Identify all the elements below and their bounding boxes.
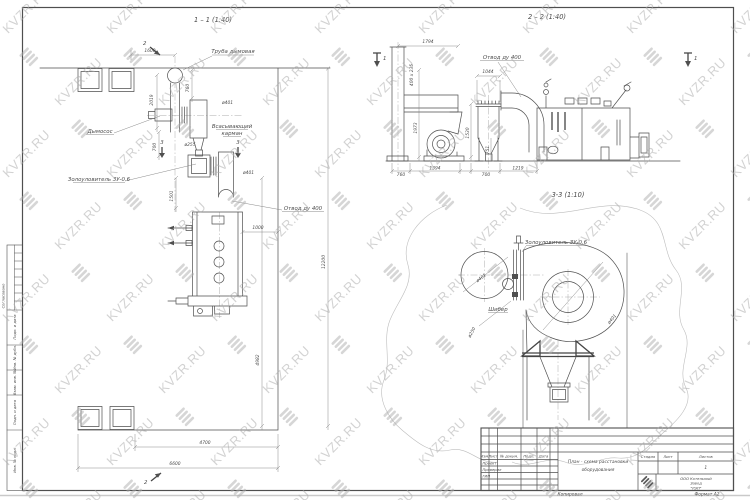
tb-footer-copied: Копировал	[557, 492, 582, 498]
sec3-label-damper: Шибер	[488, 307, 508, 313]
plan-centerlines	[147, 56, 242, 318]
plan-label-ash: Золоуловитель ЗУ-0.6	[68, 177, 131, 183]
sec2-dim-751: 751	[485, 146, 491, 155]
plan-label-pocket-1: Всасывающий	[212, 124, 253, 130]
plan-marker-3-left-head	[159, 153, 165, 158]
sec2-marker-right: 1	[694, 56, 697, 62]
plan-dim-1000: 1000	[252, 225, 263, 231]
plan-boiler	[168, 212, 247, 316]
sec2-dimension-lines	[390, 44, 539, 174]
plan-label-pocket-2: карман	[222, 131, 243, 137]
plan-dim-12200: 12200	[321, 255, 327, 269]
tb-row-gip: ГИП	[483, 475, 491, 479]
plan-dim-760: 760	[185, 84, 191, 93]
sec2-dim-1044: 1044	[482, 69, 493, 75]
sec2-gauge-circle	[624, 85, 630, 91]
plan-ash-catcher	[188, 152, 234, 197]
tb-doc-title-1: План - схема расстановки	[568, 459, 629, 465]
sec2-dim-760: 760	[397, 172, 406, 178]
tb-company-1: ООО Котельный	[680, 477, 712, 481]
tb-footer-format: Формат А2	[694, 492, 719, 498]
drawing-canvas: 1 – 1 (1:40) 1600 2019 760 700 1501 ø255…	[0, 0, 750, 500]
sec3-damper	[514, 236, 524, 300]
plan-label-fan: Дымосос	[86, 129, 112, 135]
view-2-2-title: 2 – 2 (1:40)	[528, 13, 566, 21]
sec3-dim-d401-cyclone: ø401	[606, 313, 618, 326]
tb-row-proekt: Проект	[483, 462, 498, 466]
sec3-damper-bolts	[512, 274, 518, 297]
plan-label-outlet: Отвод ду 400	[284, 206, 323, 212]
view-2-2: 2 – 2 (1:40) 1 1 1794 400 x 2	[373, 13, 697, 178]
company-logo-icon	[641, 476, 654, 489]
stamp-approved: Согласовано	[2, 283, 6, 309]
tb-company-2: Завод	[690, 482, 702, 486]
sec2-dim-1219: 1219	[512, 166, 523, 172]
plan-marker-3-left: 3	[160, 140, 164, 146]
stamp-repl-inv: Взам. инв. №	[13, 370, 17, 395]
tb-col-podp: Подп.	[523, 455, 534, 459]
plan-dim-d401-duct: ø401	[242, 170, 254, 176]
sec2-dim-400x235: 400 x 235	[409, 64, 415, 86]
tb-company-3: "РЭП"	[691, 486, 702, 490]
view-1-1-title: 1 – 1 (1:40)	[194, 16, 232, 24]
sec3-damper-mech	[503, 279, 514, 290]
plan-dim-6600: 6600	[169, 461, 180, 467]
tb-sheets-value: 1	[704, 465, 707, 471]
sec2-boiler-tubes	[552, 112, 565, 132]
plan-boiler-port-3	[214, 273, 224, 283]
plan-dimension-lines	[76, 50, 330, 472]
tb-col-data: Дата	[538, 455, 549, 459]
sec2-label-outlet: Отвод ду 400	[483, 55, 522, 61]
plan-boiler-port-1	[214, 241, 224, 251]
sec2-fan-hub	[437, 140, 445, 148]
tb-row-proveril: Проверил	[483, 468, 503, 472]
view-3-3-title: 3-3 (1:10)	[552, 191, 585, 199]
stamp-inv-dup: Инв. № дубл.	[13, 345, 17, 370]
plan-dim-4982: 4982	[255, 354, 261, 365]
sec3-break-line-left	[382, 205, 498, 462]
sec2-fan-casing	[427, 130, 455, 158]
sec2-fan-frame	[424, 112, 464, 161]
title-block: Изм. Лист № докум. Подп. Дата Проект Про…	[481, 428, 734, 498]
tb-col-sheets: Листов	[698, 455, 713, 459]
plan-dim-1501: 1501	[169, 190, 175, 201]
sec2-valve-circle-2	[544, 83, 548, 87]
sec2-fan-inner	[433, 136, 450, 153]
stamp-sign-date-1: Подп. и дата	[13, 314, 17, 340]
tb-col-sheet: Лист	[662, 455, 673, 459]
sec2-boiler	[537, 79, 649, 160]
plan-marker-2-bottom: 2	[144, 480, 148, 486]
drawing-sheet: 1 – 1 (1:40) 1600 2019 760 700 1501 ø255…	[0, 0, 750, 500]
sec2-marker-right-head	[685, 61, 691, 67]
tb-col-ndoc: № докум.	[499, 455, 518, 459]
sec2-manhole	[548, 146, 558, 154]
view-1-1: 1 – 1 (1:40) 1600 2019 760 700 1501 ø255…	[40, 16, 330, 486]
view-3-3: 3-3 (1:10) ø401 ø401 ø250 Золоуловитель …	[382, 191, 688, 464]
plan-dim-d255: ø255	[183, 142, 195, 148]
sec3-ash-leader	[522, 246, 586, 253]
sec3-label-ash: Золоуловитель ЗУ-0.6	[525, 240, 588, 246]
tb-doc-title-2: оборудования	[582, 467, 615, 473]
sec3-d250-leader	[479, 301, 511, 326]
plan-columns	[78, 69, 134, 430]
sec2-dim-1530: 1530	[465, 127, 471, 138]
margin-stamps: Согласовано Подп. и дата Инв. № дубл. Вз…	[2, 245, 23, 491]
plan-boiler-detail-circle	[198, 309, 203, 314]
plan-boiler-port-2	[214, 257, 224, 267]
plan-dim-700: 700	[152, 143, 158, 152]
plan-marker-3-right-head	[235, 153, 241, 158]
sec2-centerlines	[398, 42, 489, 170]
stamp-sign-date-2: Подп. и дата	[13, 399, 17, 425]
tb-col-list: Лист	[488, 455, 499, 459]
plan-marker-3-right: 3	[236, 140, 240, 146]
sec2-dim-700: 700	[482, 172, 491, 178]
plan-dim-d401-top: ø401	[221, 100, 233, 106]
sec2-marker-left: 1	[383, 56, 386, 62]
sec3-cyclone-casing	[524, 242, 624, 352]
sec2-marker-left-head	[374, 61, 380, 67]
sec2-valve-circle-1	[544, 90, 549, 95]
plan-marker-2-top: 2	[143, 41, 147, 47]
sec3-background-walls	[523, 253, 627, 428]
sec2-chimney	[387, 47, 458, 161]
sec2-duct-bend	[501, 91, 544, 152]
sec2-dim-1973: 1973	[413, 122, 419, 133]
sec2-outlet-leader	[480, 61, 524, 98]
plan-label-chimney: Труба дымовая	[211, 49, 255, 55]
plan-chimney-circle	[168, 68, 183, 83]
plan-pipe-arrows	[168, 226, 174, 245]
plan-dim-4700: 4700	[199, 440, 210, 446]
sec2-dim-1794: 1794	[422, 39, 433, 45]
plan-walls	[40, 68, 330, 430]
sec2-dim-1394: 1394	[429, 166, 440, 172]
tb-col-stage: Стадия	[641, 455, 656, 459]
plan-dim-2019: 2019	[149, 94, 155, 105]
stamp-inv-orig: Инв. № подл.	[13, 447, 17, 472]
sec3-dim-d250: ø250	[466, 326, 477, 340]
